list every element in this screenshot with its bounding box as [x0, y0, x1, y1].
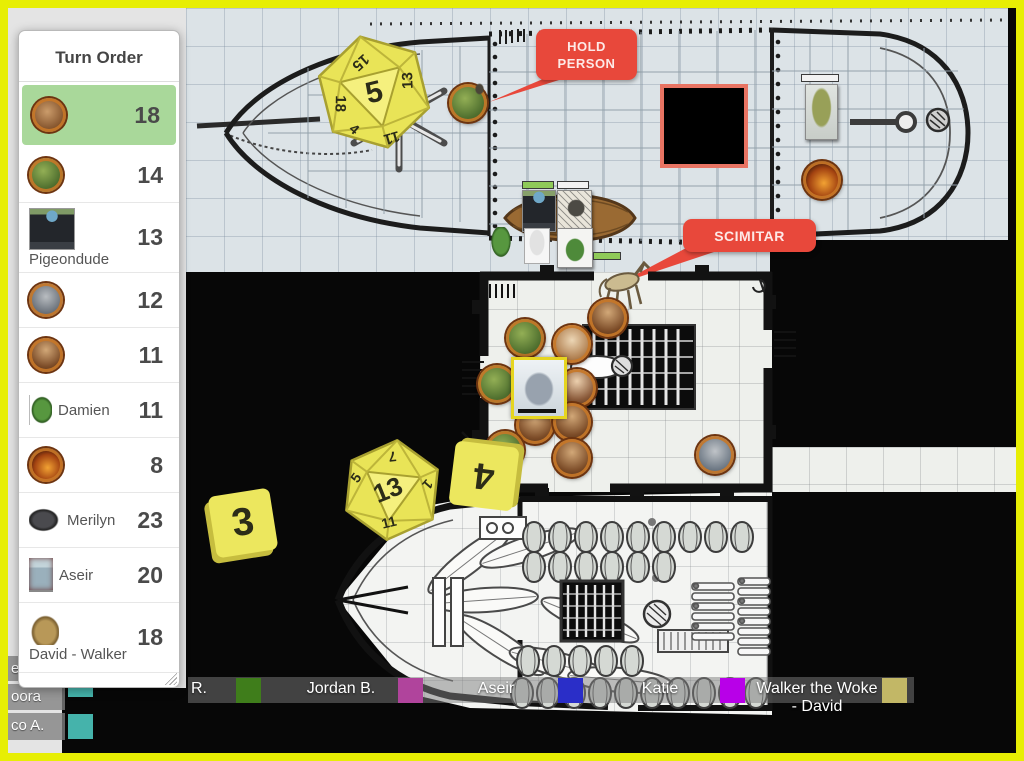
turn-initiative-value: 14: [137, 162, 171, 189]
turn-name: Aseir: [59, 567, 93, 584]
turn-name: Damien: [58, 402, 110, 419]
turn-order-panel: Turn Order 18 14 Pigeondude 13: [18, 30, 180, 688]
panel-resize-handle[interactable]: [163, 671, 177, 685]
player-color-swatch: [68, 714, 93, 739]
token-health-bar: [518, 409, 556, 413]
token-dwarf-4[interactable]: [553, 439, 591, 477]
turn-order-row[interactable]: 8: [19, 438, 179, 493]
turn-initiative-value: 20: [137, 562, 171, 589]
turn-order-row[interactable]: Merilyn 23: [19, 493, 179, 548]
callout-hold-person: HOLD PERSON: [536, 29, 637, 80]
turn-initiative-value: 13: [137, 224, 171, 251]
turn-order-row[interactable]: 11: [19, 328, 179, 383]
turn-avatar: [29, 507, 61, 533]
player-color-swatch: [398, 678, 423, 703]
player-color-swatch: [558, 678, 583, 703]
token-sprite-small[interactable]: [474, 82, 485, 96]
turn-order-row[interactable]: Pigeondude 13: [19, 203, 179, 273]
player-name: Walker the Woke - David: [754, 680, 880, 716]
player-name: Katie: [638, 680, 682, 698]
token-robot-figure[interactable]: [524, 228, 550, 264]
turn-initiative-value: 11: [139, 397, 171, 424]
token-contraption[interactable]: [557, 190, 592, 230]
turn-order-row[interactable]: Aseir 20: [19, 548, 179, 603]
token-lizardfolk-2[interactable]: [506, 319, 544, 357]
player-color-swatch: [882, 678, 907, 703]
token-green-warrior[interactable]: [805, 84, 838, 140]
turn-name: Merilyn: [67, 512, 115, 529]
player-color-swatch: [236, 678, 261, 703]
token-pigeondude[interactable]: [522, 190, 556, 232]
player-names-bar: R. Jordan B. Aseir Katie Walker the Woke…: [188, 677, 914, 703]
turn-name: Pigeondude: [29, 251, 109, 268]
turn-order-row[interactable]: Damien 11: [19, 383, 179, 438]
player-name-left: co A.: [8, 713, 65, 740]
token-label-bar: [522, 181, 554, 189]
map-right-edge: [1008, 8, 1016, 272]
turn-initiative-value: 18: [134, 102, 168, 129]
turn-avatar: [29, 208, 75, 250]
black-square-marker: [660, 84, 748, 168]
player-color-swatch: [720, 678, 745, 703]
token-dwarf-1[interactable]: [589, 299, 627, 337]
token-green-figure-card[interactable]: [557, 228, 593, 268]
turn-avatar: [29, 558, 53, 592]
turn-name: David - Walker: [29, 646, 127, 663]
turn-avatar: [29, 448, 63, 482]
turn-initiative-value: 8: [150, 452, 171, 479]
token-label-bar: [593, 252, 621, 260]
token-elf-green[interactable]: [490, 227, 512, 259]
die-tile-4: 4: [448, 440, 519, 511]
turn-order-row[interactable]: 18: [22, 85, 176, 145]
turn-avatar: [29, 613, 59, 645]
turn-initiative-value: 18: [137, 624, 171, 651]
token-selected-statue[interactable]: [511, 357, 567, 419]
token-fire-creature[interactable]: [803, 161, 841, 199]
token-label-bar: [557, 181, 589, 189]
right-corridor-floor: [772, 447, 1016, 492]
turn-order-row[interactable]: 12: [19, 273, 179, 328]
turn-avatar: [32, 98, 66, 132]
turn-avatar: [29, 338, 63, 372]
player-name: Aseir: [474, 680, 518, 698]
player-name: R.: [191, 680, 207, 698]
turn-avatar: [29, 395, 52, 425]
turn-avatar: [29, 158, 63, 192]
turn-order-row[interactable]: David - Walker 18: [19, 603, 179, 673]
token-gray-figure[interactable]: [696, 436, 734, 474]
token-label-bar: [801, 74, 839, 82]
player-name: Jordan B.: [296, 680, 386, 698]
turn-avatar: [29, 283, 63, 317]
turn-order-title: Turn Order: [19, 31, 179, 82]
turn-order-row[interactable]: 14: [19, 148, 179, 203]
app-window: 5 15 18 13 11 4 13 5: [0, 0, 1024, 761]
turn-initiative-value: 12: [137, 287, 171, 314]
callout-scimitar: SCIMITAR: [683, 219, 816, 252]
turn-initiative-value: 11: [139, 342, 171, 369]
turn-initiative-value: 23: [137, 507, 171, 534]
turn-order-list: 18 14 Pigeondude 13 12: [19, 85, 179, 673]
die-tile-3: 3: [208, 488, 279, 559]
